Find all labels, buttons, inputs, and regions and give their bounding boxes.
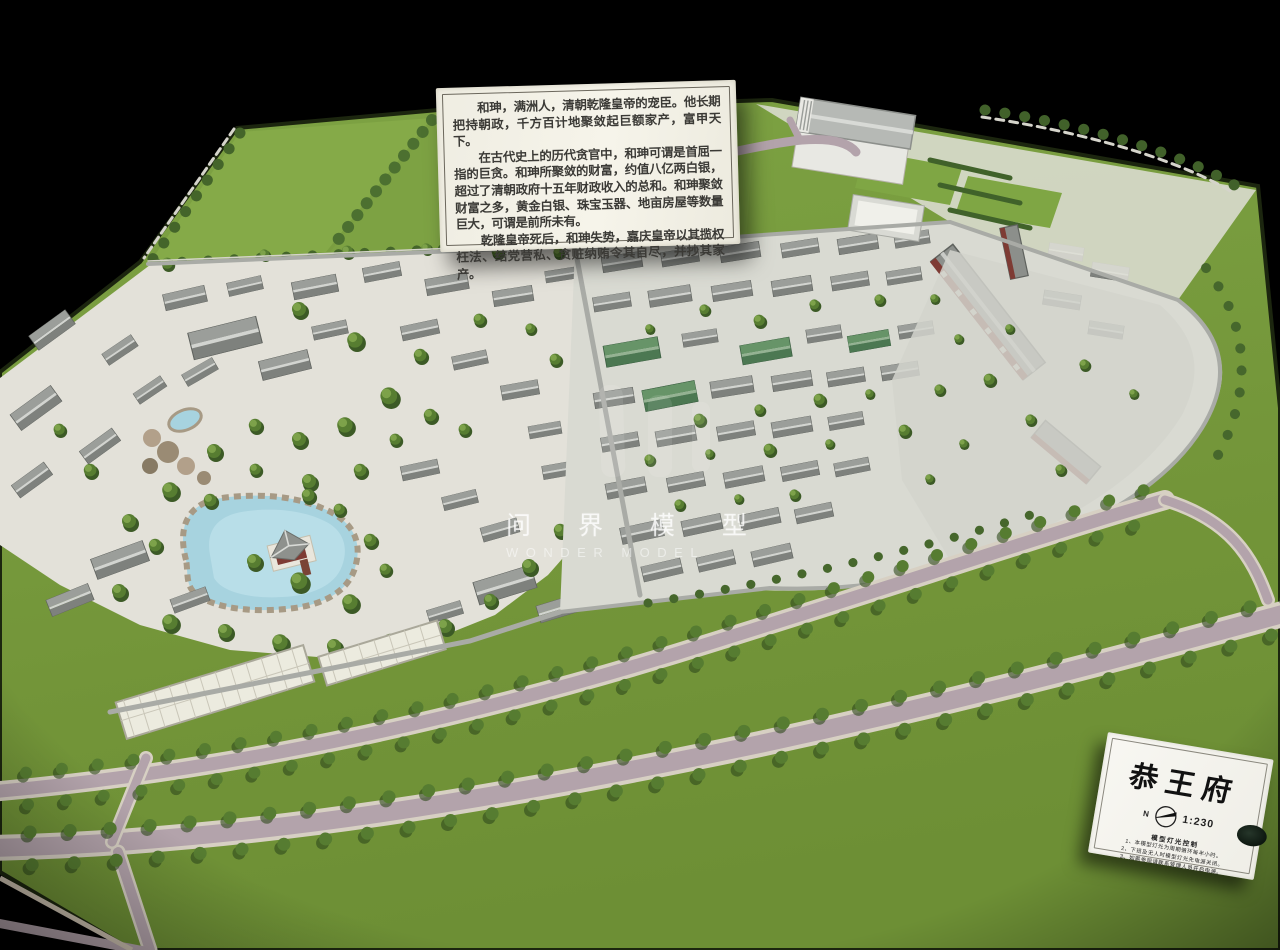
scale-label: 1:230 [1182, 814, 1215, 831]
north-label: N [1143, 808, 1150, 818]
info-placard: 和珅，满洲人，清朝乾隆皇帝的宠臣。他长期把持朝政，千方百计地聚敛起巨额家产，富甲… [436, 80, 740, 252]
info-paragraph: 和珅，满洲人，清朝乾隆皇帝的宠臣。他长期把持朝政，千方百计地聚敛起巨额家产，富甲… [452, 93, 721, 150]
title-card: 恭王府 N 1:230 模型灯光控制 1、本模型灯光为周期循环每半小时。 2、下… [1088, 732, 1274, 880]
north-arrow-icon [1152, 803, 1180, 831]
model-photo: 和珅，满洲人，清朝乾隆皇帝的宠臣。他长期把持朝政，千方百计地聚敛起巨额家产，富甲… [0, 0, 1280, 950]
title-card-frame: 恭王府 N 1:230 模型灯光控制 1、本模型灯光为周期循环每半小时。 2、下… [1094, 738, 1268, 875]
info-paragraph: 乾隆皇帝死后，和珅失势，嘉庆皇帝以其揽权枉法、结党营私、贪赃纳贿令其自尽，并抄其… [456, 226, 725, 283]
info-paragraph: 在古代史上的历代贪官中，和珅可谓是首屈一指的巨贪。和珅所聚敛的财富，约值八亿两白… [454, 143, 724, 233]
info-placard-text: 和珅，满洲人，清朝乾隆皇帝的宠臣。他长期把持朝政，千方百计地聚敛起巨额家产，富甲… [442, 86, 734, 246]
